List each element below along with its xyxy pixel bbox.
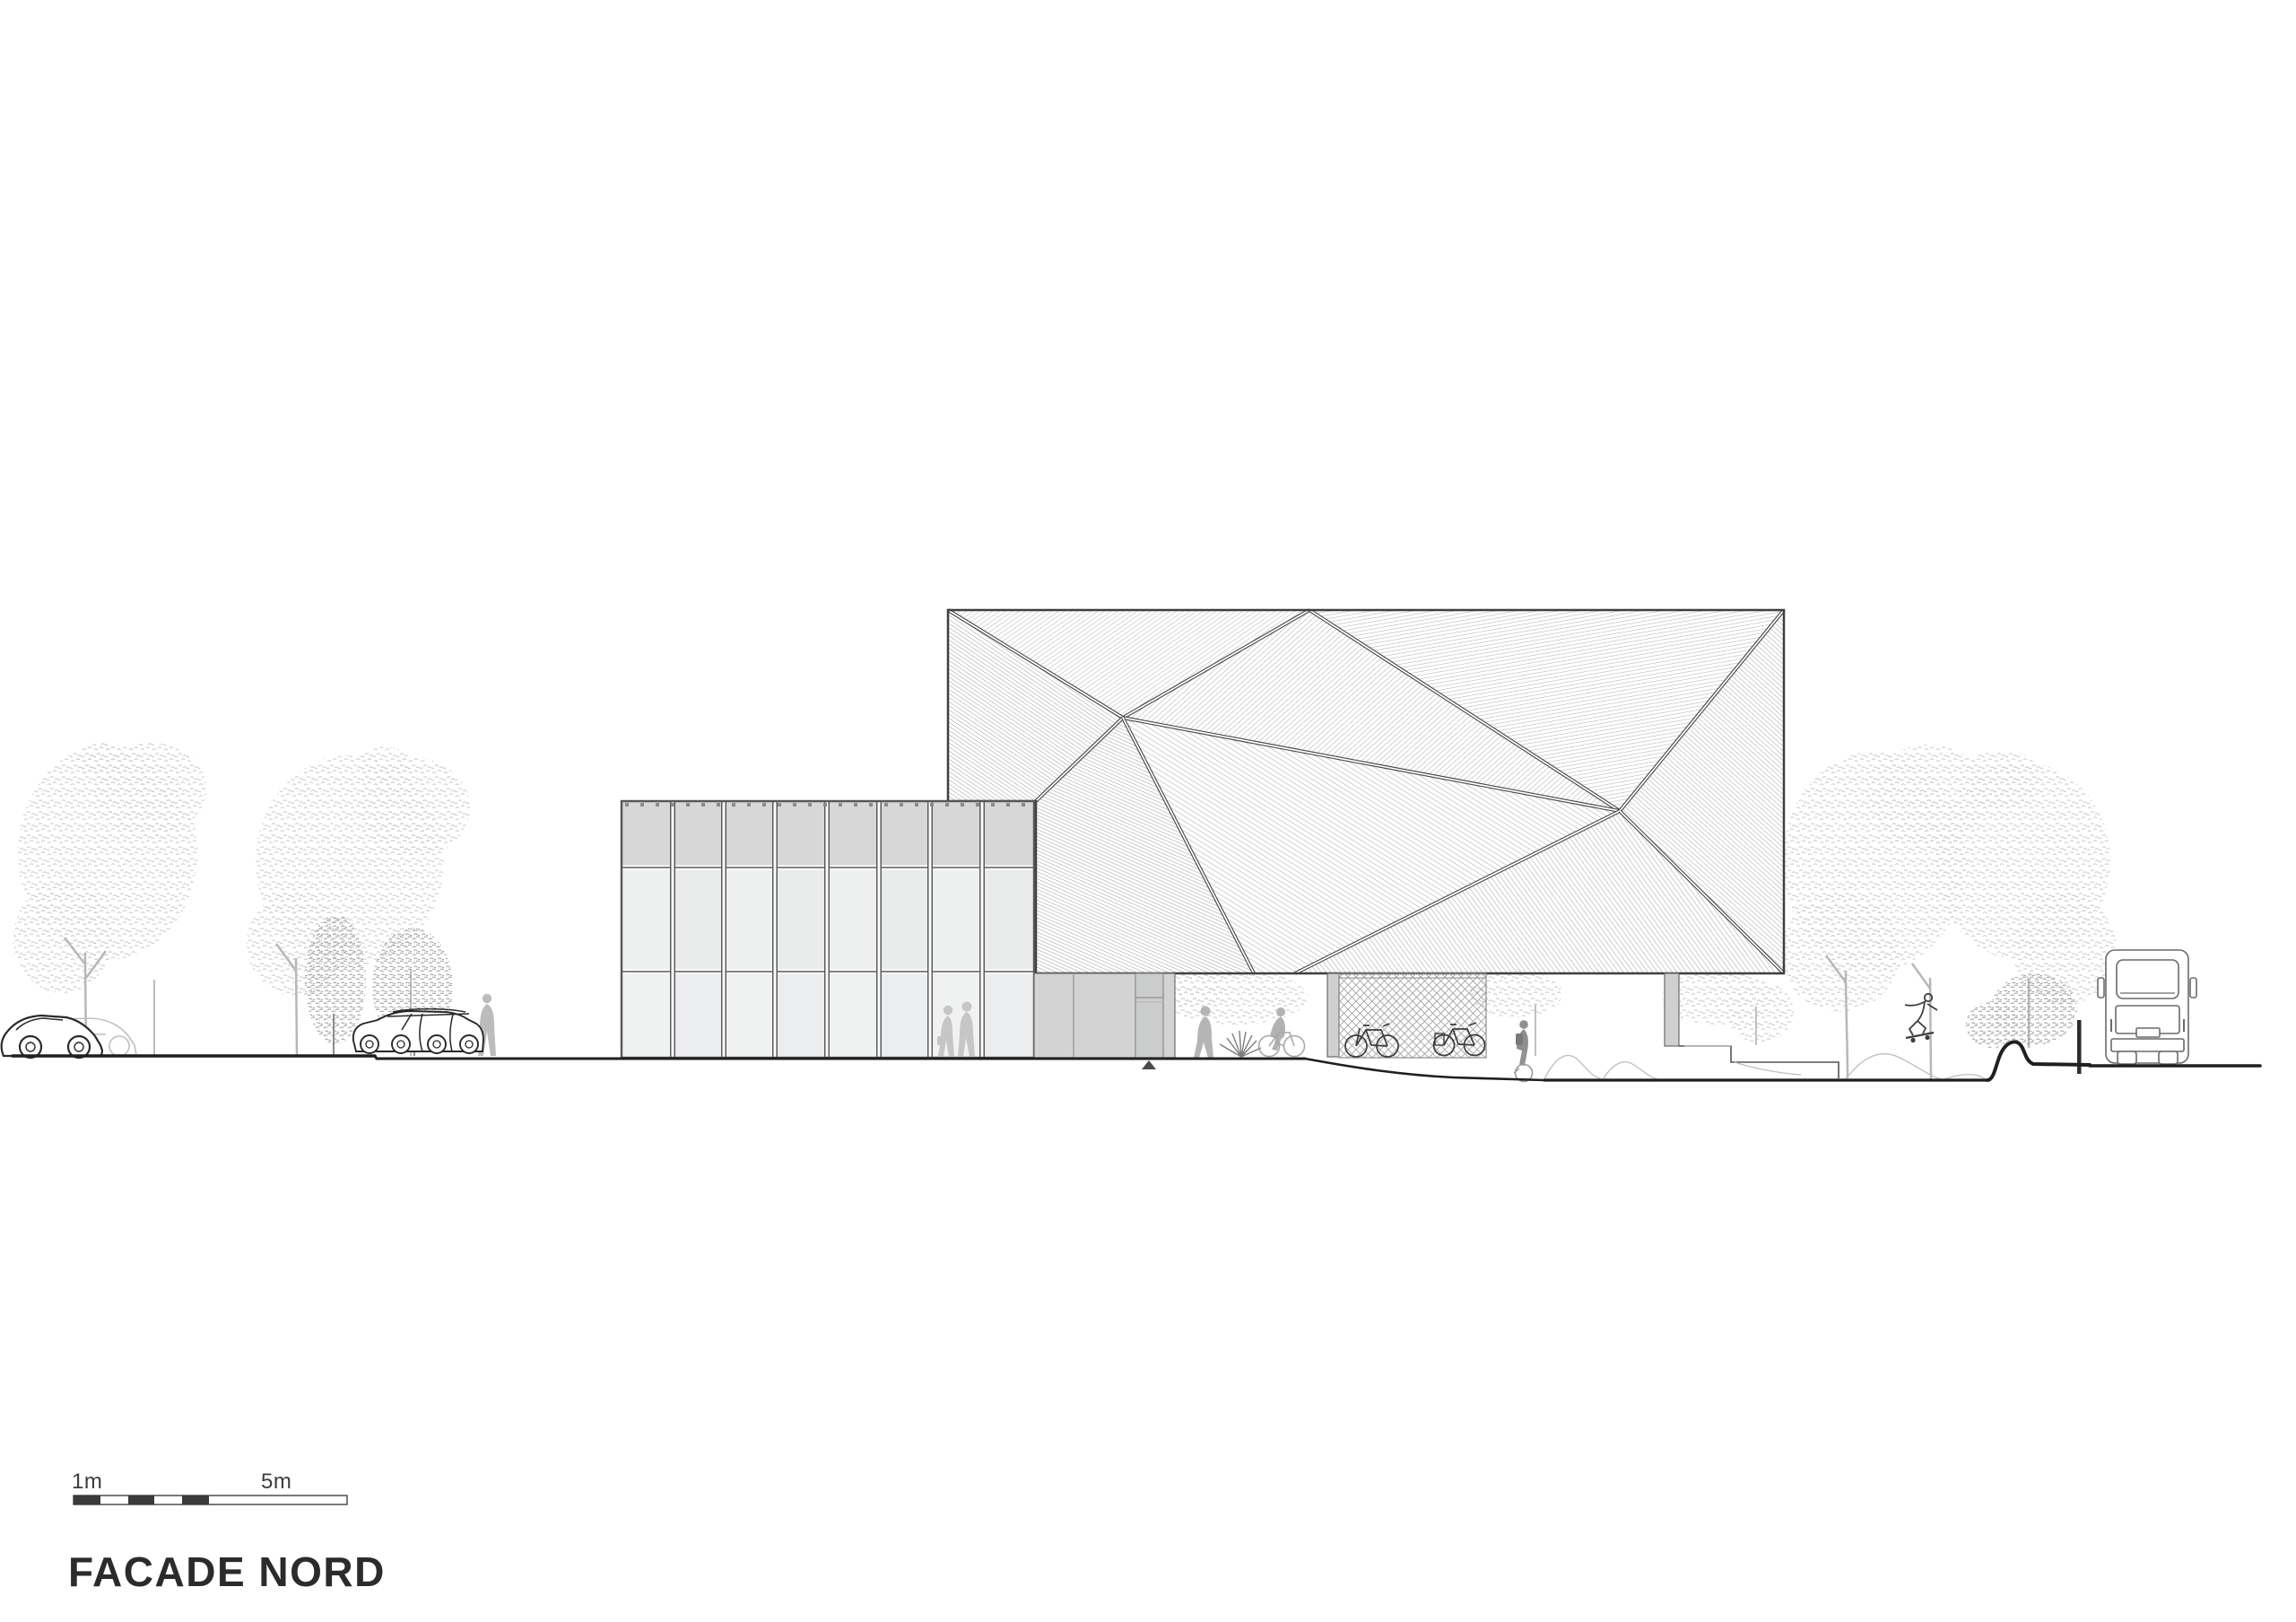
spandrel-panel: [930, 801, 982, 868]
mullion-line: [726, 801, 727, 1058]
bus-wheel: [2118, 1051, 2136, 1064]
mullion-line: [829, 801, 831, 1058]
tree-canopy: [357, 746, 411, 782]
glass-panel: [724, 972, 775, 1058]
shrub: [1220, 1031, 1261, 1057]
scale-label-5m: 5m: [261, 1469, 291, 1494]
scale-bar: 1m 5m: [72, 1469, 347, 1504]
mullion-line: [772, 801, 774, 1058]
glass-panel: [982, 868, 1034, 972]
glass-panel: [775, 868, 827, 972]
mullion-line: [979, 801, 981, 1058]
glass-panel: [827, 868, 879, 972]
foliage-blob: [1726, 981, 1794, 1042]
scale-bar-segment: [182, 1496, 209, 1504]
column: [1665, 973, 1679, 1046]
spandrel-panel: [982, 801, 1034, 868]
parked-suv: [353, 1009, 483, 1053]
bus-rear: [2098, 950, 2196, 1064]
tree-trunk: [1912, 964, 1931, 1079]
person-silhouette: [962, 1002, 972, 1012]
skate-ramp-curve: [1604, 1062, 1657, 1079]
mullion-line: [876, 801, 878, 1058]
facade-nord-elevation-drawing: 1m 5m FACADE NORD: [0, 0, 2296, 1622]
mullion-line: [881, 801, 883, 1058]
drawing-title: FACADE NORD: [68, 1548, 386, 1595]
bus-bumper: [2111, 1039, 2184, 1051]
mullion-line: [670, 801, 672, 1058]
glass-panel: [879, 972, 930, 1058]
scale-label-1m: 1m: [72, 1469, 102, 1494]
glass-panel: [673, 972, 724, 1058]
entrance-door: [1135, 973, 1163, 1058]
glass-panel: [622, 972, 673, 1058]
person-silhouette: [944, 1006, 952, 1015]
glass-annex: [622, 801, 1034, 1058]
tree-canopy: [1962, 750, 2041, 807]
scale-bar-segment: [128, 1496, 154, 1504]
mullion-line: [932, 801, 934, 1058]
parked-car: [2, 1016, 102, 1058]
spandrel-panel: [673, 801, 724, 868]
mullion-line: [777, 801, 778, 1058]
mullion-line: [674, 801, 676, 1058]
bus-mirror: [2190, 978, 2196, 998]
ground-line-slope: [1305, 1059, 1544, 1080]
skateboarder-figure: [1905, 994, 1937, 1042]
tree-canopy: [13, 882, 112, 993]
ground-line-berm: [1987, 1042, 2090, 1080]
bus-mirror: [2098, 978, 2104, 998]
entrance-arrow-icon: [1142, 1060, 1156, 1069]
tree-canopy: [1781, 894, 1900, 1012]
cyclist-riding-silhouette: [1514, 1020, 1533, 1081]
glass-panel: [622, 868, 673, 972]
glass-panel: [930, 868, 982, 972]
trees-right: [1781, 745, 2117, 1079]
bag-silhouette: [937, 1036, 943, 1045]
tree-canopy: [75, 743, 126, 779]
glass-panel: [724, 868, 775, 972]
roof-facets: [948, 610, 1784, 973]
bus-license-plate: [2136, 1028, 2160, 1037]
mullion-line: [927, 801, 929, 1058]
skatepark: [1404, 1046, 1986, 1079]
glass-panel: [775, 972, 827, 1058]
glass-panel: [879, 868, 930, 972]
skate-steps: [1679, 1046, 1839, 1078]
skate-ramp-curve: [1544, 1056, 1600, 1079]
mullion-line: [984, 801, 986, 1058]
spandrel-panel: [775, 801, 827, 868]
scale-bar-outline: [74, 1496, 347, 1504]
spandrel-panel: [827, 801, 879, 868]
spandrel-panel: [879, 801, 930, 868]
bus-wheel: [2159, 1051, 2178, 1064]
spandrel-panel: [724, 801, 775, 868]
skate-bowl-curve: [1944, 1075, 1986, 1079]
glass-panel: [982, 972, 1034, 1058]
spandrel-panel: [622, 801, 673, 868]
trees-left: [13, 743, 470, 1056]
mullion-line: [721, 801, 723, 1058]
faceted-roof-volume: [948, 610, 1784, 973]
small-tree-canopy: [305, 915, 366, 1044]
scale-bar-segment: [74, 1496, 100, 1504]
mullion-line: [824, 801, 826, 1058]
glass-panel: [827, 972, 879, 1058]
skate-bowl-curve: [1846, 1054, 1941, 1079]
glass-panel: [673, 868, 724, 972]
column: [1327, 973, 1339, 1057]
